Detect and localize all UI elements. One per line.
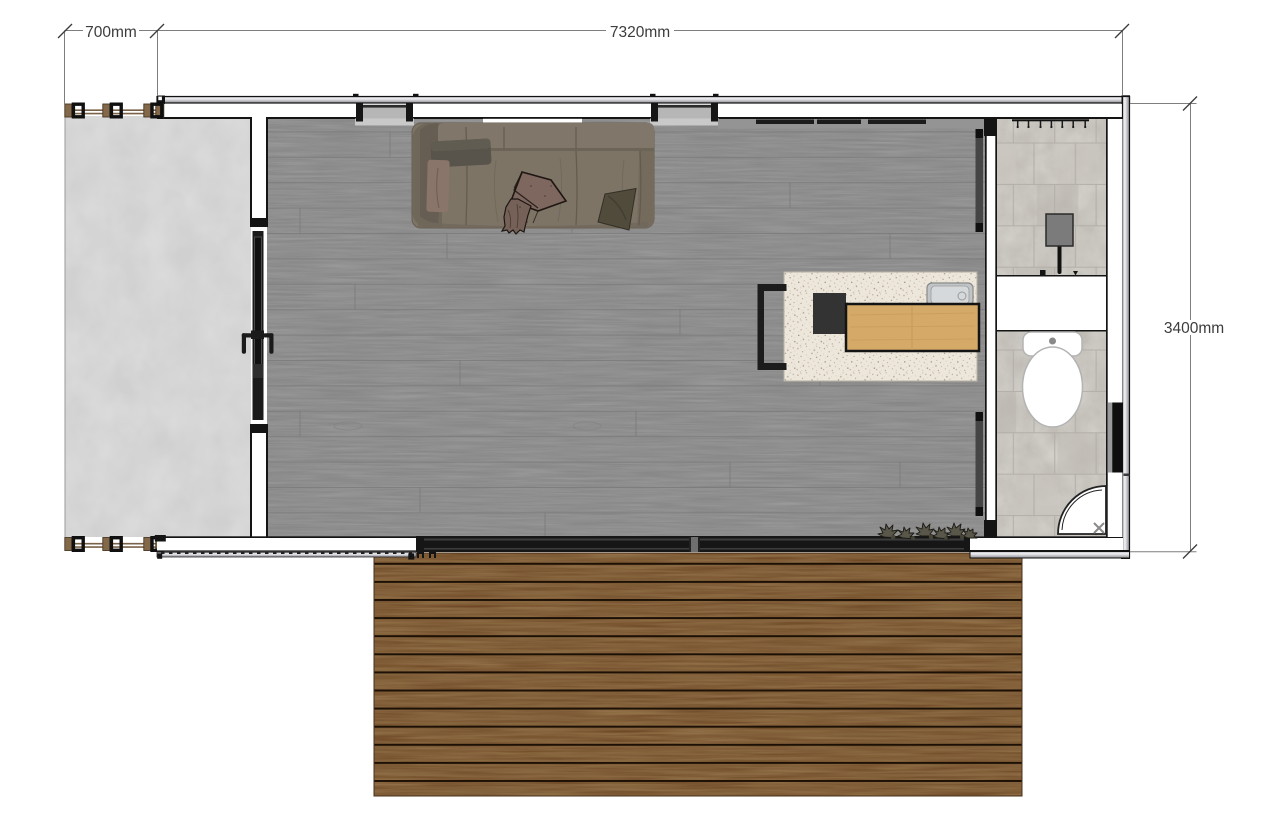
svg-text:3400mm: 3400mm — [1164, 320, 1224, 337]
svg-text:700mm: 700mm — [85, 24, 137, 41]
svg-text:7320mm: 7320mm — [610, 24, 670, 41]
